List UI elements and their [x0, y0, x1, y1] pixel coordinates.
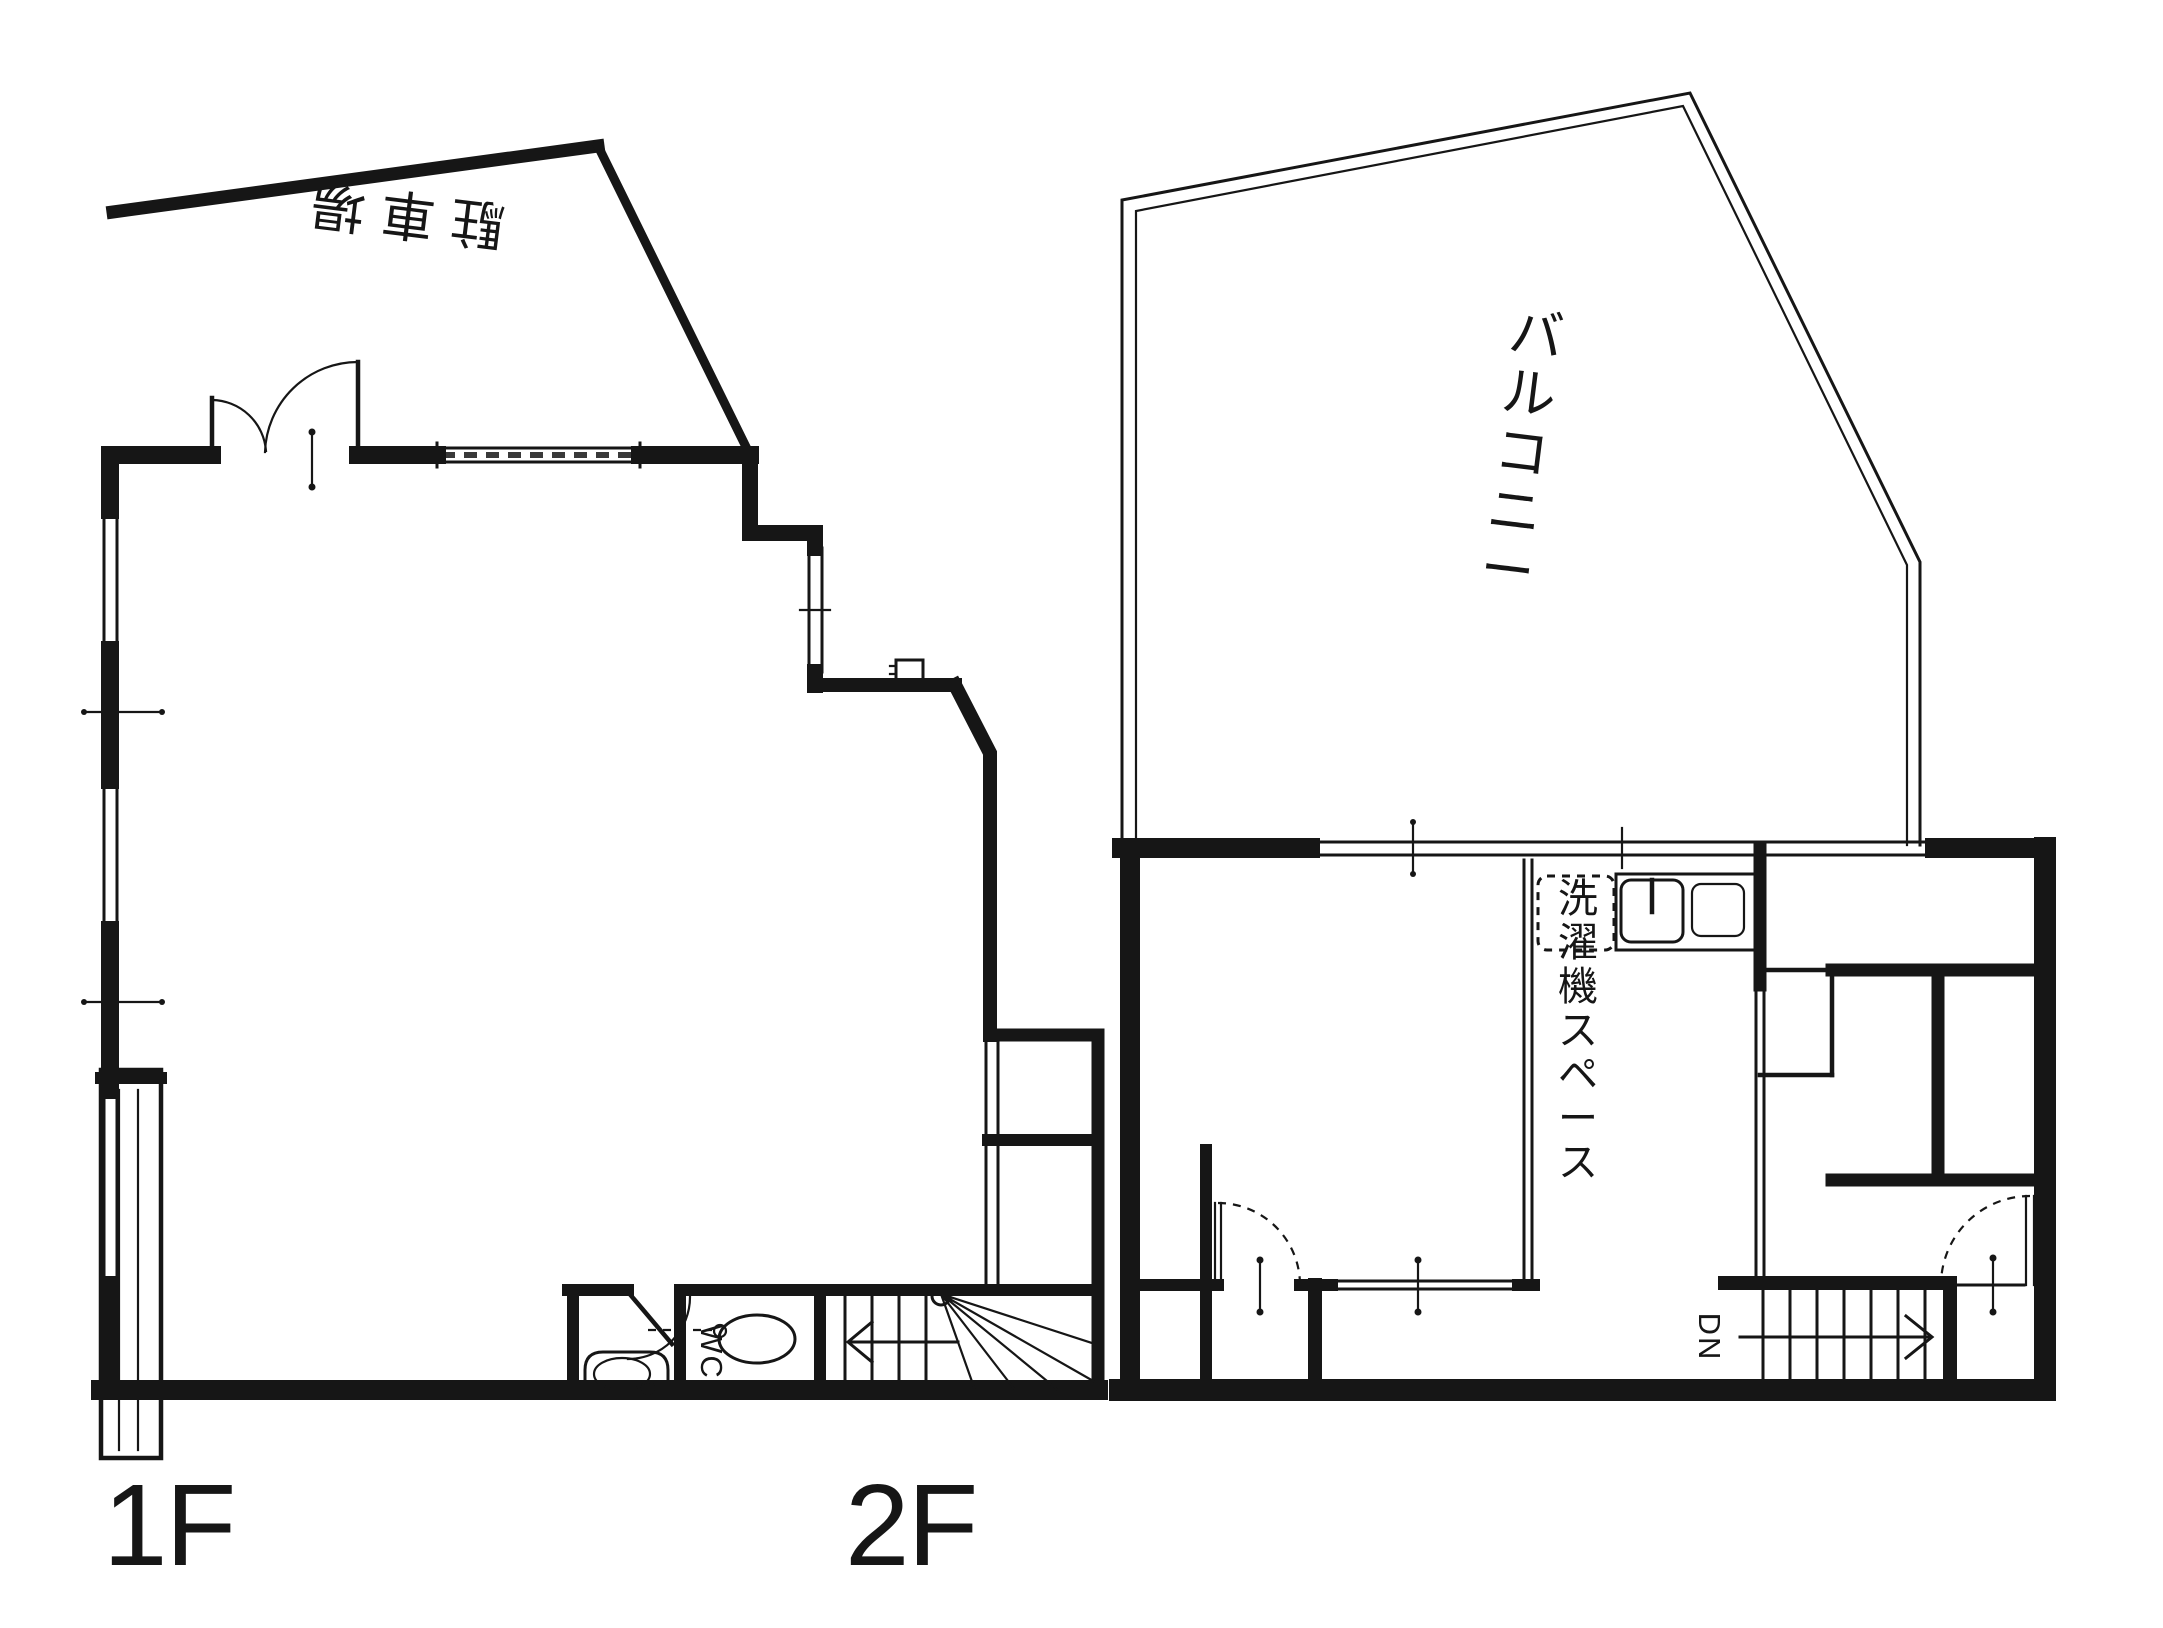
tatami-room-partitions	[1760, 970, 2045, 1180]
laundry-space: 洗濯機スペース	[1538, 876, 1614, 1185]
stair-risers	[845, 1290, 926, 1390]
window	[104, 780, 117, 930]
partition-sliding-wall	[1524, 860, 1532, 1285]
window	[437, 443, 640, 467]
wc-room: WC	[628, 1292, 795, 1380]
wc-door-leaf	[628, 1292, 672, 1344]
scanned-floorplan-page: 駐車場	[0, 0, 2163, 1628]
wall-segment	[750, 455, 815, 533]
bottom-strip-walls-1f	[568, 1290, 940, 1390]
tick-dot	[81, 709, 87, 715]
balcony-outline: バルコニー	[1122, 93, 1920, 848]
parking-label: 駐車場	[292, 170, 508, 255]
parking-area: 駐車場	[113, 146, 750, 455]
kitchen-counter	[1616, 874, 1756, 950]
entrance-double-door	[212, 362, 358, 491]
floor-label-1f: 1F	[103, 1460, 234, 1590]
window	[1310, 819, 1935, 877]
tick-dot	[309, 429, 316, 436]
tick-dot	[1990, 1255, 1997, 1262]
window	[104, 1090, 117, 1285]
floor-2f-plan: バルコニー	[845, 93, 2045, 1590]
sliding-door	[1332, 1257, 1518, 1316]
stairs-down-label: DN	[1692, 1313, 1727, 1362]
tick-dot	[159, 709, 165, 715]
wall-segment	[955, 685, 990, 1035]
windows-1f	[81, 443, 830, 1285]
staircase-1f	[845, 1287, 1098, 1390]
small-door-swing-arc	[212, 400, 266, 451]
floor-label-2f: 2F	[845, 1460, 976, 1590]
door-swing-arc	[1941, 1196, 2030, 1285]
tick-dot	[1410, 819, 1416, 825]
counter-basin-icon	[1692, 884, 1744, 936]
winder-tread-lines	[941, 1294, 1098, 1390]
wc-label: WC	[694, 1324, 729, 1380]
tick-dot	[81, 999, 87, 1005]
tick-dot	[309, 484, 316, 491]
tick-dot	[1257, 1257, 1264, 1264]
floor-1f-plan: 駐車場	[81, 146, 1098, 1590]
staircase-2f: DN	[1692, 1283, 1950, 1390]
balcony-label: バルコニー	[1477, 302, 1567, 604]
parking-side-boundary-line	[598, 146, 750, 455]
windows-2f	[1310, 819, 1935, 877]
hinged-door	[1215, 1203, 1300, 1316]
tick-dot	[1415, 1309, 1422, 1316]
tick-dot	[1415, 1257, 1422, 1264]
tick-dot	[1257, 1309, 1264, 1316]
door-leaf	[1215, 1203, 1221, 1285]
laundry-label: 洗濯機スペース	[1558, 877, 1598, 1185]
doors-2f	[1215, 1196, 2034, 1316]
closet-sliding-front	[986, 1040, 998, 1288]
tick-dot	[1410, 871, 1416, 877]
interior-walls-2f	[1130, 848, 1764, 1390]
tatami-sliding-front	[1756, 985, 1764, 1283]
window	[104, 510, 117, 650]
window	[800, 548, 830, 672]
kitchen-sink-icon	[1621, 880, 1683, 942]
floorplan-drawing: 駐車場	[0, 0, 2163, 1628]
tick-dot	[1990, 1309, 1997, 1316]
tick-dot	[159, 999, 165, 1005]
door-leaf	[2026, 1196, 2034, 1285]
exterior-walls-1f	[101, 455, 1098, 1390]
